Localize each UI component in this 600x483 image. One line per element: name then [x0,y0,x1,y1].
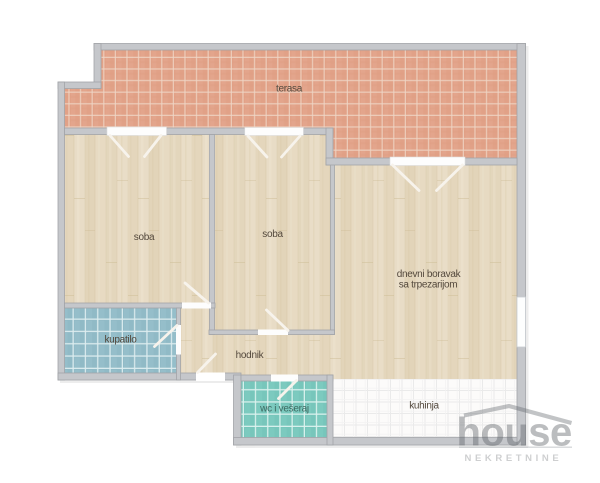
svg-text:hodnik: hodnik [236,350,265,361]
svg-text:soba: soba [262,229,283,240]
svg-text:dnevni boravak: dnevni boravak [397,269,462,280]
svg-text:kupatilo: kupatilo [104,335,137,346]
svg-text:soba: soba [134,232,155,243]
svg-text:NEKRETNINE: NEKRETNINE [465,453,563,464]
svg-text:terasa: terasa [276,84,303,95]
svg-text:kuhinja: kuhinja [409,401,439,412]
svg-text:sa trpezarijom: sa trpezarijom [399,280,458,291]
svg-text:wc i vešeraj: wc i vešeraj [259,404,309,415]
